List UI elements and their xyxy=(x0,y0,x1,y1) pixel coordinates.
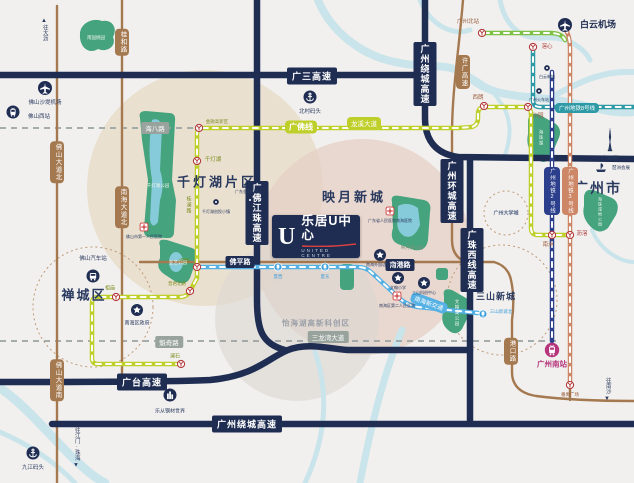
station-label: 普君北路 xyxy=(168,281,186,287)
station-label: 三山新城北 xyxy=(490,309,513,315)
poi-label: 千灯湖创投小镇 xyxy=(202,209,230,215)
street-label: 魁奇路 xyxy=(155,336,183,348)
station-label: 广州北站 xyxy=(457,17,479,25)
transit-station-icon xyxy=(274,263,283,272)
direction-arrow: ▲往大沥 xyxy=(41,18,47,43)
direction-arrow: 往江门·珠海▼ xyxy=(73,426,79,468)
park-label: 文翰湖公园 xyxy=(454,299,460,327)
metro-station-icon xyxy=(193,157,202,166)
transit-line-label: 龙溪大道 xyxy=(347,117,381,129)
logo-red-swoosh xyxy=(301,243,357,247)
district-name: 映月新城 xyxy=(322,187,386,206)
poi-label: 广州塔 xyxy=(602,154,619,162)
star-icon xyxy=(374,249,386,261)
tower-icon xyxy=(606,128,615,152)
project-logo: U 乐居U中心 UNITED CENTRE xyxy=(272,215,360,258)
station-label: 夏东 xyxy=(321,274,330,280)
metro-station-icon xyxy=(478,29,487,38)
transit-station-icon xyxy=(479,310,488,319)
station-label: 西朗 xyxy=(472,93,483,101)
district-name: 广州大学城 xyxy=(493,210,518,217)
anchor-icon xyxy=(27,447,40,460)
station-label: 千灯湖 xyxy=(205,155,222,163)
poi-label: 佛山汽车站 xyxy=(79,254,107,262)
road-label: 港口路 xyxy=(504,338,518,365)
park-label: 南国桃园 xyxy=(87,35,105,41)
station-label: 南洲 xyxy=(542,240,553,248)
arrow-up-icon: ▲ xyxy=(41,18,47,24)
park-label: 海珠湖 xyxy=(538,130,544,147)
metro-station-icon xyxy=(186,287,195,296)
arrow-down-icon: ▼ xyxy=(73,462,79,468)
poi-label: 佛山西站 xyxy=(28,112,50,120)
station-label: 滘心 xyxy=(541,42,552,50)
direction-label: 往南沙 xyxy=(604,378,610,395)
expo-icon xyxy=(595,163,607,173)
street-label: 三龙湾大道 xyxy=(308,331,349,343)
poi-label: 南海外国语学校 xyxy=(366,262,394,268)
building-icon xyxy=(164,389,177,402)
star-icon xyxy=(418,277,430,289)
poi-label: 广州火车站 xyxy=(529,97,549,103)
poi-label: 白云新城 xyxy=(539,74,555,80)
poi-label: 南海区政府 xyxy=(124,320,149,327)
plane-icon xyxy=(38,81,52,95)
poi-label: 广东省人民医院南海医院 xyxy=(368,218,412,224)
metro-station-icon xyxy=(548,231,557,240)
metro-station-icon xyxy=(529,43,538,52)
metro-station-icon xyxy=(480,102,489,111)
street-label: 海八路 xyxy=(141,122,169,134)
metro-station-icon xyxy=(177,360,186,369)
direction-arrow: 往南沙▼ xyxy=(604,377,610,402)
transit-line-label: 广州地铁2号线 xyxy=(544,167,560,215)
map-canvas: U 乐居U中心 UNITED CENTRE 千灯湖片区映月新城禅城区广州市三山新… xyxy=(0,0,634,483)
poi-label: 佛山沙堤机场 xyxy=(28,98,61,106)
highway-label: 广州环城高速 xyxy=(441,159,464,223)
metro-station-icon xyxy=(195,124,204,133)
transit-line-label: 广州地铁8号线 xyxy=(555,103,599,113)
transit-line-label: 广佛线 xyxy=(285,121,317,134)
poi-label: 北村码头 xyxy=(299,107,321,115)
park-label: 亚艺公园 xyxy=(169,260,187,266)
metro-station-icon xyxy=(112,293,121,302)
arrow-down-icon: ▼ xyxy=(604,395,610,401)
road-label: 佛山大道南 xyxy=(50,359,64,401)
cross-icon xyxy=(386,207,395,216)
road-label: 许广高速 xyxy=(456,55,470,89)
road-label: 桂和路 xyxy=(115,29,129,56)
dot-icon xyxy=(247,197,253,203)
bus-icon xyxy=(87,270,100,283)
star-icon xyxy=(131,304,143,316)
metro-station-icon xyxy=(193,263,202,272)
poi-label: 南海区第二人民医院 xyxy=(379,303,415,309)
street-label: 桂澜路 xyxy=(186,196,193,214)
station-label: 澜石 xyxy=(170,353,180,360)
poi-label: 文翰小学 xyxy=(390,285,406,291)
park-label: 映月湖公园 xyxy=(401,245,424,251)
metro-station-icon xyxy=(566,231,575,240)
district-name: 怡海湖高新科创区 xyxy=(282,318,350,329)
park-label: 海珠湿地公园 xyxy=(597,197,603,227)
poi-label: 广东金融高新区 xyxy=(235,189,263,195)
poi-label: 三山科创中心 xyxy=(412,290,436,296)
project-title: 乐居U中心 xyxy=(301,215,357,243)
metro-station-icon xyxy=(524,103,533,112)
district-name: 禅城区 xyxy=(61,285,106,304)
poi-label: 乐从钢材世界 xyxy=(155,408,185,415)
district-name: 广州市 xyxy=(574,178,622,198)
station-label: 番禺广场 xyxy=(561,392,579,398)
poi-label: 琶洲会展 xyxy=(612,165,630,171)
station-label: 广州南站 xyxy=(537,359,567,370)
station-label: 祖庙 xyxy=(105,285,115,292)
highway-label: 广三高速 xyxy=(287,68,337,85)
station-label: 沥滘 xyxy=(576,229,587,237)
highway-label: 广珠西线高速 xyxy=(461,228,484,292)
station-label: 夏西 xyxy=(274,274,283,280)
cross-icon xyxy=(393,292,402,301)
station-label: 金融高新区 xyxy=(206,119,229,125)
road-label: 南海大道北 xyxy=(115,186,129,228)
dot-icon xyxy=(213,199,219,205)
logo-u-mark: U xyxy=(278,225,295,249)
road-label: 佛山大道北 xyxy=(50,141,64,183)
highway-label: 广州绕城高速 xyxy=(414,42,437,106)
train-icon xyxy=(7,106,20,119)
metro-station-icon xyxy=(545,343,560,358)
metro-station-icon xyxy=(566,381,575,390)
park-label: 千灯湖公园 xyxy=(147,183,170,189)
station-label: 沙园 xyxy=(532,111,543,119)
poi-label: 白云机场 xyxy=(580,18,616,31)
plane-icon xyxy=(558,18,572,32)
direction-label: 往大沥 xyxy=(41,25,47,42)
dot-icon xyxy=(536,88,542,94)
transit-line-label: 广州地铁3号线 xyxy=(562,167,578,215)
dot-icon xyxy=(544,65,550,71)
project-subtitle: UNITED CENTRE xyxy=(301,248,357,258)
star-icon xyxy=(392,272,404,284)
direction-label: 往江门·珠海 xyxy=(73,427,79,461)
highway-label: 佛平路 xyxy=(226,256,255,268)
cross-icon xyxy=(140,223,149,232)
poi-label: 佛山市第一人民医院 xyxy=(126,234,162,240)
highway-label: 广台高速 xyxy=(117,374,167,391)
transit-station-icon xyxy=(321,263,330,272)
poi-label: 九江码头 xyxy=(22,463,44,471)
anchor-icon xyxy=(304,91,317,104)
highway-label: 广州绕城高速 xyxy=(212,416,282,433)
